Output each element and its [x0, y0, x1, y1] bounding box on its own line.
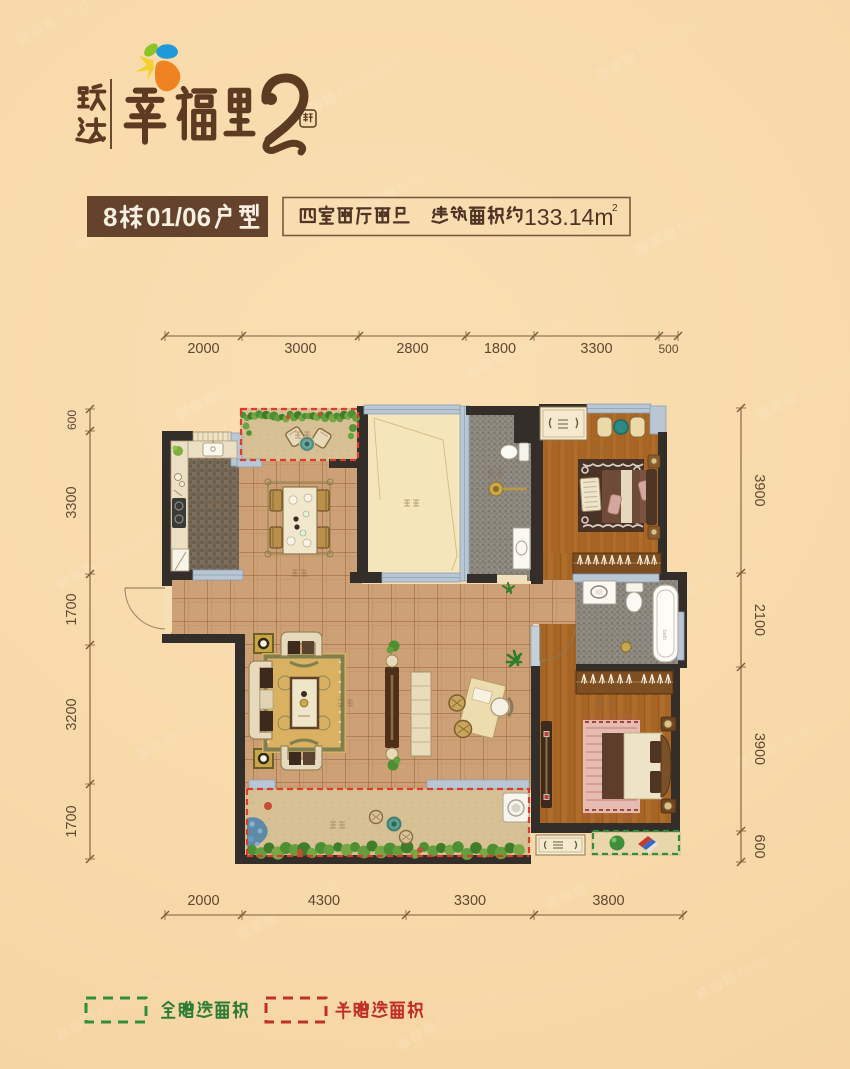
svg-text:3300: 3300 [454, 893, 486, 909]
svg-text:2000: 2000 [187, 341, 219, 357]
svg-text:600: 600 [751, 834, 767, 858]
svg-text:fang.com: fang.com [54, 0, 125, 27]
svg-text:3300: 3300 [64, 486, 80, 518]
svg-text:133.14m: 133.14m [524, 204, 614, 230]
svg-text:fang.com: fang.com [734, 932, 805, 982]
svg-text:fang.com: fang.com [94, 522, 165, 572]
svg-text:500: 500 [658, 342, 678, 356]
svg-text:2100: 2100 [751, 604, 767, 636]
svg-text:bath: bath [661, 630, 667, 640]
svg-text:fang.com: fang.com [774, 702, 845, 752]
svg-text:fang.com: fang.com [434, 982, 505, 1032]
svg-text:3900: 3900 [751, 733, 767, 765]
svg-text:1700: 1700 [64, 805, 80, 837]
svg-text:1700: 1700 [64, 593, 80, 625]
svg-text:4300: 4300 [308, 893, 340, 909]
svg-text:fang.com: fang.com [214, 352, 285, 402]
svg-text:fang.com: fang.com [634, 12, 705, 62]
svg-text:600: 600 [65, 410, 79, 430]
svg-text:1800: 1800 [484, 341, 516, 357]
svg-text:3000: 3000 [284, 341, 316, 357]
svg-text:fang.com: fang.com [674, 187, 745, 237]
svg-text:fang.com: fang.com [694, 542, 765, 592]
svg-text:01/06: 01/06 [146, 202, 211, 232]
svg-text:2000: 2000 [187, 893, 219, 909]
svg-text:3900: 3900 [751, 474, 767, 506]
svg-text:8: 8 [103, 202, 117, 232]
svg-text:3800: 3800 [592, 893, 624, 909]
svg-text:3200: 3200 [64, 698, 80, 730]
svg-text:fang.com: fang.com [334, 52, 405, 102]
svg-text:3300: 3300 [580, 341, 612, 357]
svg-text:2: 2 [612, 203, 618, 214]
svg-text:2800: 2800 [396, 341, 428, 357]
svg-text:fang.com: fang.com [174, 692, 245, 742]
svg-text:fang.com: fang.com [794, 352, 850, 402]
svg-text:fang.com: fang.com [394, 147, 465, 197]
